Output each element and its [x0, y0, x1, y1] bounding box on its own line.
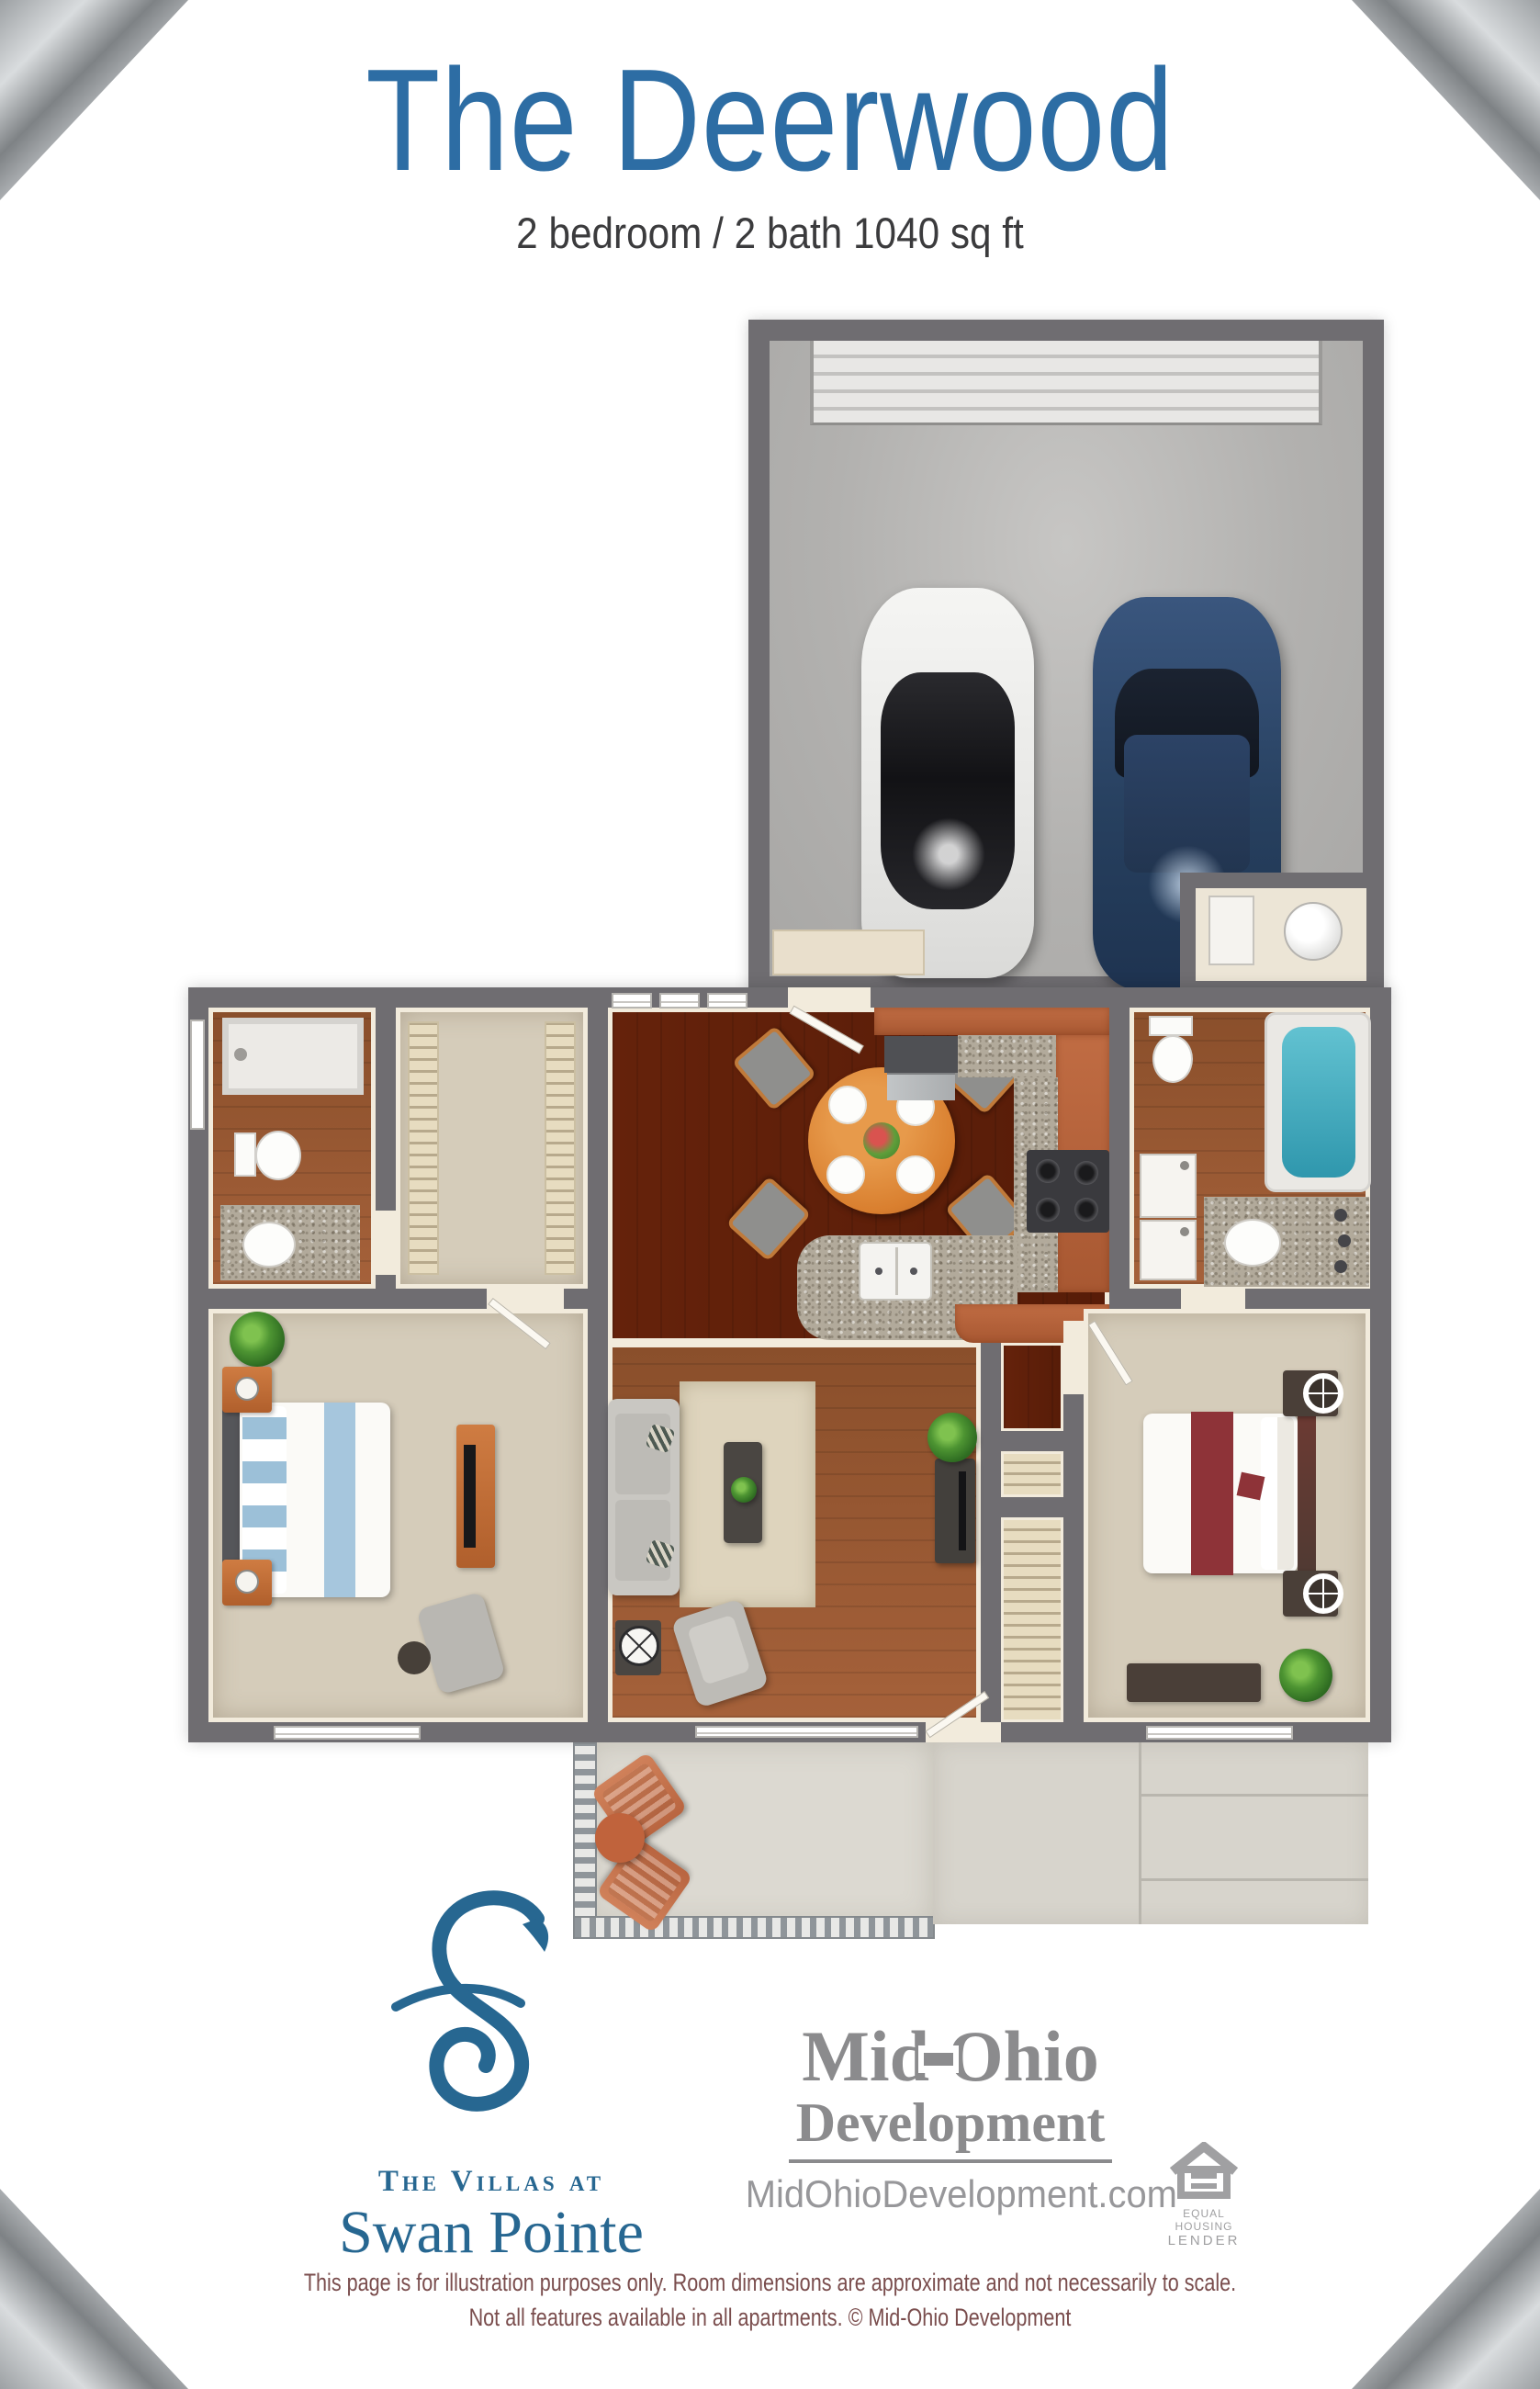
window-icon	[612, 993, 652, 1009]
furnace-icon	[1208, 896, 1254, 965]
bathroom-sink-icon	[1224, 1219, 1281, 1267]
community-logo: The Villas at Swan Pointe	[303, 1888, 680, 2273]
page-subtitle: 2 bedroom / 2 bath 1040 sq ft	[77, 208, 1463, 258]
kitchen-sink-icon	[859, 1242, 932, 1301]
bedroom-chair-icon	[416, 1592, 506, 1696]
plant-icon	[230, 1312, 285, 1367]
walkway-pavers	[933, 1742, 1368, 1924]
window-icon	[659, 993, 700, 1009]
equal-housing-house-icon	[1165, 2142, 1242, 2201]
equal-housing-text: LENDER	[1153, 2233, 1254, 2248]
vanity-accessory	[1334, 1260, 1347, 1273]
shower-icon	[222, 1018, 364, 1095]
bedroom-1	[208, 1309, 588, 1722]
toilet-icon	[255, 1131, 301, 1180]
kitchen-counter-top-run	[874, 1008, 1109, 1035]
toilet-tank-icon	[1149, 1016, 1193, 1036]
bathroom-sink-icon	[242, 1222, 296, 1268]
developer-name: MidOhio	[735, 2021, 1166, 2092]
window-icon	[707, 993, 748, 1009]
closet-shelves-icon	[545, 1021, 576, 1275]
bed-cushion	[1237, 1472, 1265, 1501]
bathroom-1-opening	[376, 1211, 396, 1275]
hallway	[1001, 1343, 1063, 1431]
clock-icon	[1303, 1373, 1343, 1414]
hall-closet	[1001, 1517, 1063, 1722]
lamp-icon	[235, 1570, 259, 1594]
nightstand-icon	[1283, 1571, 1338, 1617]
disclaimer-line-1: This page is for illustration purposes o…	[154, 2265, 1387, 2300]
plant-icon	[927, 1413, 977, 1462]
window-icon	[190, 1020, 205, 1130]
developer-name-line2: Development	[789, 2094, 1113, 2163]
white-car-highlight	[912, 817, 985, 891]
bathroom-2	[1130, 1008, 1370, 1289]
bedroom-2-door-opening	[1063, 1321, 1084, 1394]
window-icon	[1146, 1726, 1293, 1740]
bathroom-1	[208, 1008, 376, 1289]
bed-pillows	[1261, 1417, 1294, 1570]
refrigerator-door	[887, 1073, 955, 1100]
white-car-icon	[861, 588, 1034, 978]
stove-icon	[1027, 1150, 1109, 1233]
bathtub-icon	[1265, 1012, 1371, 1192]
bathroom-2-door-opening	[1181, 1289, 1245, 1309]
disclaimer-line-2: Not all features available in all apartm…	[154, 2300, 1387, 2335]
patio-door-icon	[695, 1726, 918, 1738]
hyphen-box-icon	[918, 2045, 959, 2073]
refrigerator-icon	[884, 1036, 958, 1073]
vanity-accessory	[1334, 1209, 1347, 1222]
dresser-icon	[456, 1425, 495, 1568]
bed-runner	[1191, 1412, 1233, 1575]
nightstand-icon	[222, 1367, 272, 1413]
linen-closet	[1001, 1451, 1063, 1497]
water-heater-icon	[1284, 902, 1343, 961]
vanity-accessory	[1338, 1234, 1351, 1247]
ottoman-icon	[398, 1641, 431, 1674]
toilet-icon	[1152, 1035, 1193, 1083]
disclaimer: This page is for illustration purposes o…	[0, 2265, 1540, 2335]
sofa-icon	[608, 1399, 680, 1595]
garage-entry-opening	[788, 987, 871, 1008]
developer-logo: MidOhio Development MidOhioDevelopment.c…	[735, 2021, 1166, 2216]
developer-website: MidOhioDevelopment.com	[746, 2172, 1156, 2216]
flyer-page: The Deerwood 2 bedroom / 2 bath 1040 sq …	[0, 0, 1540, 2389]
round-tray-icon	[619, 1626, 659, 1666]
window-icon	[274, 1726, 421, 1740]
equal-housing-text: EQUAL HOUSING	[1153, 2207, 1254, 2233]
clock-icon	[1303, 1573, 1343, 1614]
patio-table-icon	[595, 1813, 645, 1863]
page-title: The Deerwood	[123, 48, 1417, 193]
closet-shelves-icon	[408, 1021, 439, 1275]
bathtub-water	[1282, 1027, 1355, 1178]
community-name: Swan Pointe	[303, 2198, 680, 2268]
nightstand-icon	[1283, 1370, 1338, 1416]
garage-door-icon	[810, 341, 1322, 425]
walk-in-closet	[396, 1008, 588, 1289]
swan-logo-icon	[386, 1888, 597, 2126]
plant-icon	[1279, 1649, 1332, 1702]
equal-housing-lender-logo: EQUAL HOUSING LENDER	[1153, 2142, 1254, 2248]
bed-icon	[1143, 1414, 1298, 1573]
centerpiece-icon	[863, 1122, 900, 1159]
plant-icon	[731, 1477, 757, 1503]
tv-icon	[959, 1471, 966, 1550]
community-prefix: The Villas at	[303, 2165, 680, 2199]
nightstand-icon	[222, 1560, 272, 1606]
washer-icon	[1140, 1154, 1197, 1218]
bed-runner	[324, 1403, 355, 1597]
bed-headboard	[1298, 1408, 1316, 1579]
garage-entry-step	[772, 930, 925, 975]
tv-icon	[464, 1445, 476, 1548]
toilet-tank-icon	[234, 1133, 256, 1177]
lamp-icon	[235, 1377, 259, 1401]
dresser-icon	[1127, 1663, 1261, 1702]
dryer-icon	[1140, 1220, 1197, 1280]
tv-stand-icon	[935, 1459, 975, 1563]
